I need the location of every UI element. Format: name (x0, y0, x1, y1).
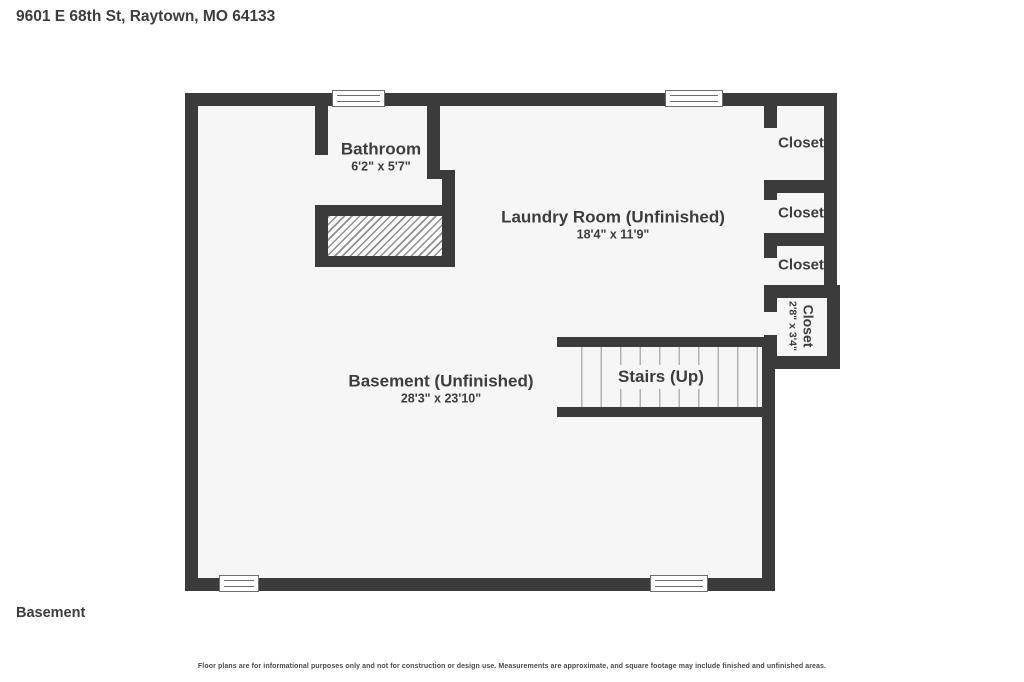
wall-segment (315, 93, 328, 155)
hatched-area (328, 216, 442, 256)
wall-segment (764, 93, 777, 128)
basement-label: Basement (Unfinished) 28'3" x 23'10" (348, 371, 533, 408)
bathroom-label: Bathroom 6'2" x 5'7" (341, 139, 421, 176)
room-dimensions: 28'3" x 23'10" (348, 392, 533, 408)
room-name: Laundry Room (Unfinished) (501, 207, 725, 228)
room-name: Bathroom (341, 139, 421, 160)
disclaimer-text: Floor plans are for informational purpos… (0, 663, 1024, 670)
room-name: Closet (799, 301, 817, 351)
floor-name: Basement (16, 605, 85, 621)
room-dimensions: 2'8" x 3'4" (786, 301, 799, 351)
wall-segment (427, 93, 440, 179)
wall-segment (764, 180, 837, 193)
window-pane (224, 580, 254, 587)
wall-segment (185, 93, 837, 106)
closet1-label: Closet (778, 135, 824, 152)
wall-segment (185, 93, 198, 591)
window-glyph (332, 90, 385, 107)
wall-segment (442, 170, 455, 267)
window-pane (670, 95, 718, 102)
room-name: Basement (Unfinished) (348, 371, 533, 392)
window-pane (337, 95, 380, 102)
wall-segment (315, 205, 455, 216)
window-glyph (219, 575, 259, 592)
wall-segment (315, 256, 455, 267)
room-dimensions: 18'4" x 11'9" (501, 228, 725, 244)
wall-segment (557, 337, 775, 347)
wall-segment (762, 337, 775, 591)
wall-segment (557, 407, 775, 417)
window-pane (655, 580, 703, 587)
window-glyph (650, 575, 708, 592)
stairs-label: Stairs (Up) (612, 365, 710, 389)
closet2-label: Closet (778, 205, 824, 222)
wall-segment (824, 93, 837, 298)
floorplan-page: 9601 E 68th St, Raytown, MO 64133 (0, 0, 1024, 682)
wall-segment (764, 233, 837, 246)
floor-plan: Bathroom 6'2" x 5'7" Laundry Room (Unfin… (0, 0, 1024, 682)
wall-segment (764, 285, 840, 298)
room-dimensions: 6'2" x 5'7" (341, 160, 421, 176)
laundry-label: Laundry Room (Unfinished) 18'4" x 11'9" (501, 207, 725, 244)
closet3-label: Closet (778, 257, 824, 274)
closet4-label: Closet 2'8" x 3'4" (786, 301, 817, 351)
window-glyph (665, 90, 723, 107)
